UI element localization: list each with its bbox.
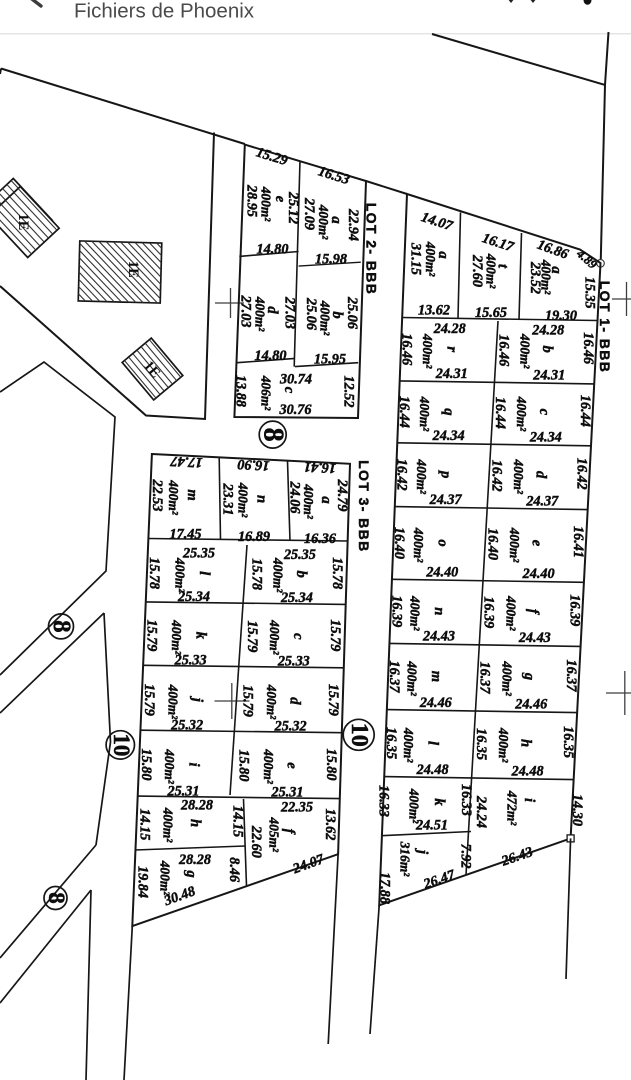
- svg-text:400m²: 400m²: [411, 527, 426, 564]
- svg-text:400m²: 400m²: [518, 333, 533, 370]
- svg-text:24.34: 24.34: [529, 430, 562, 446]
- svg-text:a: a: [328, 216, 344, 223]
- svg-text:400m²: 400m²: [420, 333, 435, 370]
- svg-text:16.40: 16.40: [391, 527, 407, 559]
- svg-text:400m²: 400m²: [514, 396, 529, 433]
- svg-text:400m²: 400m²: [270, 557, 285, 594]
- svg-text:m: m: [184, 489, 200, 500]
- svg-text:16.33: 16.33: [458, 784, 474, 816]
- svg-text:400m²: 400m²: [503, 595, 518, 632]
- svg-text:h: h: [518, 739, 534, 747]
- svg-text:30.74: 30.74: [279, 371, 312, 387]
- svg-text:Fichiers de Phoenix: Fichiers de Phoenix: [74, 0, 255, 23]
- svg-text:n: n: [431, 607, 447, 615]
- svg-text:24.37: 24.37: [525, 493, 559, 509]
- svg-text:24.48: 24.48: [416, 762, 449, 778]
- svg-text:12.52: 12.52: [341, 376, 357, 408]
- svg-text:400m²: 400m²: [500, 660, 515, 697]
- svg-text:n: n: [254, 495, 270, 503]
- svg-text:16.44: 16.44: [396, 396, 412, 428]
- svg-text:22.53: 22.53: [149, 479, 165, 512]
- svg-text:14.15: 14.15: [137, 808, 153, 840]
- svg-text:14.15: 14.15: [229, 805, 245, 837]
- svg-text:15.80: 15.80: [235, 750, 251, 782]
- svg-text:o: o: [434, 539, 450, 546]
- svg-text:14.80: 14.80: [257, 241, 289, 257]
- svg-text:16.37: 16.37: [386, 661, 402, 694]
- svg-text:16.44: 16.44: [492, 397, 508, 429]
- svg-text:r: r: [444, 346, 460, 352]
- svg-text:15.80: 15.80: [138, 749, 154, 781]
- svg-text:16.37: 16.37: [563, 660, 579, 693]
- svg-text:400m²: 400m²: [267, 619, 282, 656]
- svg-text:c: c: [536, 409, 552, 416]
- svg-text:28.28: 28.28: [180, 797, 213, 813]
- svg-text:27.03: 27.03: [282, 296, 298, 329]
- svg-text:25.35: 25.35: [283, 547, 316, 563]
- svg-text:LOT 3- BBB: LOT 3- BBB: [356, 460, 372, 553]
- svg-text:16.42: 16.42: [394, 459, 410, 491]
- svg-text:16.36: 16.36: [304, 531, 337, 547]
- svg-text:406m²: 406m²: [258, 375, 273, 412]
- svg-text:24.79: 24.79: [334, 479, 350, 512]
- svg-text:405m²: 405m²: [267, 816, 282, 853]
- svg-text:400m²: 400m²: [160, 807, 175, 844]
- svg-text:16.37: 16.37: [477, 662, 493, 695]
- svg-text:j: j: [189, 696, 205, 703]
- svg-text:400m²: 400m²: [162, 748, 177, 785]
- svg-text:10: 10: [109, 733, 134, 756]
- svg-text:400m²: 400m²: [423, 241, 438, 278]
- svg-text:15.79: 15.79: [244, 620, 260, 652]
- svg-text:24.37: 24.37: [429, 492, 463, 508]
- svg-text:p: p: [438, 469, 454, 478]
- svg-text:16.41: 16.41: [304, 458, 337, 476]
- svg-text:24.48: 24.48: [511, 763, 544, 779]
- svg-text:a: a: [435, 251, 451, 258]
- svg-text:27.03: 27.03: [238, 295, 254, 328]
- svg-text:c: c: [290, 633, 306, 640]
- svg-text:15.78: 15.78: [329, 557, 345, 589]
- svg-text:24.51: 24.51: [415, 817, 448, 833]
- svg-text:24.43: 24.43: [422, 629, 455, 645]
- svg-text:25.06: 25.06: [303, 297, 319, 331]
- svg-text:30.76: 30.76: [279, 402, 313, 418]
- svg-text:i: i: [186, 762, 202, 766]
- svg-text:25.12: 25.12: [285, 191, 301, 224]
- svg-text:27.60: 27.60: [469, 254, 485, 287]
- svg-text:400m²: 400m²: [264, 684, 279, 721]
- svg-text:22.94: 22.94: [345, 208, 361, 241]
- svg-text:15.98: 15.98: [315, 251, 347, 267]
- svg-text:15.95: 15.95: [314, 351, 346, 367]
- svg-text:q: q: [441, 408, 457, 415]
- svg-text:22.60: 22.60: [248, 825, 264, 858]
- svg-text:17.45: 17.45: [170, 526, 202, 542]
- svg-text:27.09: 27.09: [301, 197, 317, 230]
- svg-text:a: a: [318, 496, 334, 503]
- svg-text:g: g: [183, 869, 199, 877]
- svg-text:24.40: 24.40: [425, 565, 458, 581]
- svg-text:13.62: 13.62: [418, 302, 450, 318]
- svg-text:d: d: [287, 697, 303, 705]
- svg-text:15.65: 15.65: [475, 305, 507, 321]
- svg-text:22.35: 22.35: [280, 799, 313, 815]
- svg-text:16.39: 16.39: [480, 596, 496, 628]
- svg-text:400m²: 400m²: [404, 660, 419, 697]
- svg-text:d: d: [264, 306, 280, 314]
- svg-text:16.35: 16.35: [383, 727, 399, 759]
- svg-text:16.46: 16.46: [580, 332, 596, 365]
- svg-text:16.35: 16.35: [473, 728, 489, 760]
- svg-text:25.34: 25.34: [280, 590, 313, 606]
- svg-text:17.88: 17.88: [377, 872, 393, 904]
- svg-text:400m²: 400m²: [258, 186, 273, 223]
- svg-text:16.89: 16.89: [238, 529, 270, 545]
- svg-text:16.39: 16.39: [388, 595, 404, 627]
- svg-text:13.88: 13.88: [233, 375, 249, 407]
- svg-text:d: d: [532, 471, 548, 479]
- svg-text:15.35: 15.35: [582, 277, 598, 309]
- svg-text:24.24: 24.24: [473, 795, 489, 828]
- svg-text:16.33: 16.33: [376, 785, 392, 817]
- svg-text:25.06: 25.06: [344, 296, 360, 330]
- svg-text:31.15: 31.15: [408, 242, 424, 275]
- svg-text:24.31: 24.31: [435, 366, 468, 382]
- svg-text:15.79: 15.79: [327, 619, 343, 651]
- svg-text:15.78: 15.78: [146, 557, 162, 589]
- svg-text:400m²: 400m²: [538, 259, 553, 296]
- svg-text:14.80: 14.80: [255, 348, 287, 364]
- svg-text:400m²: 400m²: [511, 458, 526, 495]
- svg-text:i: i: [521, 798, 537, 802]
- svg-text:k: k: [431, 798, 447, 806]
- svg-text:16.35: 16.35: [560, 726, 576, 758]
- svg-text:24.43: 24.43: [518, 630, 551, 646]
- svg-text:400m²: 400m²: [414, 458, 429, 495]
- svg-text:7.92: 7.92: [458, 844, 474, 869]
- svg-text:15.79: 15.79: [240, 685, 256, 717]
- svg-text:16.41: 16.41: [570, 526, 586, 558]
- svg-text:400m²: 400m²: [235, 482, 250, 519]
- svg-text:m: m: [428, 671, 444, 682]
- svg-text:16.39: 16.39: [567, 594, 583, 626]
- svg-text:400m²: 400m²: [166, 479, 181, 516]
- svg-text:g: g: [521, 672, 537, 680]
- svg-text:316m²: 316m²: [397, 841, 412, 878]
- svg-text:1E: 1E: [125, 261, 141, 278]
- svg-text:400m²: 400m²: [252, 296, 267, 333]
- svg-text:25.31: 25.31: [271, 784, 304, 800]
- svg-text:16.46: 16.46: [496, 334, 512, 367]
- svg-text:400m²: 400m²: [301, 483, 316, 520]
- svg-text:24.40: 24.40: [522, 566, 555, 582]
- svg-text:25.32: 25.32: [170, 718, 203, 734]
- svg-text:28.95: 28.95: [244, 184, 260, 217]
- svg-text:8.46: 8.46: [226, 857, 242, 883]
- svg-text:8: 8: [48, 620, 75, 633]
- svg-text:h: h: [187, 819, 203, 827]
- svg-text:400m²: 400m²: [261, 748, 276, 785]
- svg-text:15.80: 15.80: [323, 749, 339, 781]
- svg-text:24.46: 24.46: [419, 695, 453, 711]
- svg-text:b: b: [329, 311, 345, 318]
- svg-text:b: b: [539, 346, 555, 353]
- svg-text:LOT 2- BBB: LOT 2- BBB: [364, 203, 380, 296]
- svg-text:15.79: 15.79: [144, 619, 160, 651]
- svg-text:400m²: 400m²: [483, 253, 498, 290]
- svg-text:e: e: [284, 762, 300, 769]
- svg-text:15.79: 15.79: [325, 684, 341, 716]
- svg-text:8: 8: [44, 892, 69, 904]
- svg-text:a: a: [548, 266, 564, 273]
- svg-text:e: e: [529, 540, 545, 547]
- svg-text:13.62: 13.62: [322, 808, 338, 840]
- svg-text:17.47: 17.47: [169, 453, 203, 471]
- svg-text:23.31: 23.31: [219, 483, 235, 516]
- svg-text:16.42: 16.42: [574, 458, 590, 490]
- svg-text:j: j: [414, 848, 430, 855]
- svg-text:400m²: 400m²: [407, 595, 422, 632]
- svg-text:16.46: 16.46: [399, 333, 415, 366]
- svg-text:25.33: 25.33: [174, 653, 207, 669]
- svg-text:24.28: 24.28: [531, 322, 564, 338]
- svg-text:400m²: 400m²: [172, 557, 187, 594]
- svg-text:k: k: [193, 632, 209, 640]
- svg-text:25.33: 25.33: [277, 654, 310, 670]
- svg-text:25.32: 25.32: [274, 719, 307, 735]
- svg-text:16.44: 16.44: [577, 395, 593, 427]
- svg-text:14.30: 14.30: [569, 794, 585, 826]
- svg-text:16.42: 16.42: [488, 460, 504, 492]
- svg-text:LOT 1- BBB: LOT 1- BBB: [597, 281, 613, 374]
- svg-text:24.06: 24.06: [287, 481, 303, 515]
- svg-text:8: 8: [258, 428, 289, 442]
- svg-text:472m²: 472m²: [504, 790, 519, 827]
- svg-text:24.31: 24.31: [532, 368, 565, 384]
- svg-text:19.84: 19.84: [135, 866, 151, 898]
- svg-text:400m²: 400m²: [417, 396, 432, 433]
- svg-text:b: b: [293, 571, 309, 578]
- svg-text:400m²: 400m²: [401, 727, 416, 764]
- svg-text:15.79: 15.79: [141, 684, 157, 716]
- svg-text:24.34: 24.34: [432, 428, 465, 444]
- svg-text:1E: 1E: [15, 214, 31, 231]
- svg-text:400m²: 400m²: [169, 619, 184, 656]
- svg-text:16.40: 16.40: [484, 528, 500, 560]
- svg-text:15.78: 15.78: [248, 558, 264, 590]
- svg-text:c: c: [281, 387, 297, 394]
- svg-text:25.34: 25.34: [177, 589, 210, 605]
- svg-text:400m²: 400m²: [166, 684, 181, 721]
- svg-text:400m²: 400m²: [507, 527, 522, 564]
- svg-text:400m²: 400m²: [496, 727, 511, 764]
- svg-text:16.90: 16.90: [237, 456, 270, 474]
- svg-text:28.28: 28.28: [178, 852, 211, 868]
- svg-text:24.28: 24.28: [433, 321, 466, 337]
- svg-text:10: 10: [346, 723, 372, 747]
- svg-text:24.46: 24.46: [514, 696, 548, 712]
